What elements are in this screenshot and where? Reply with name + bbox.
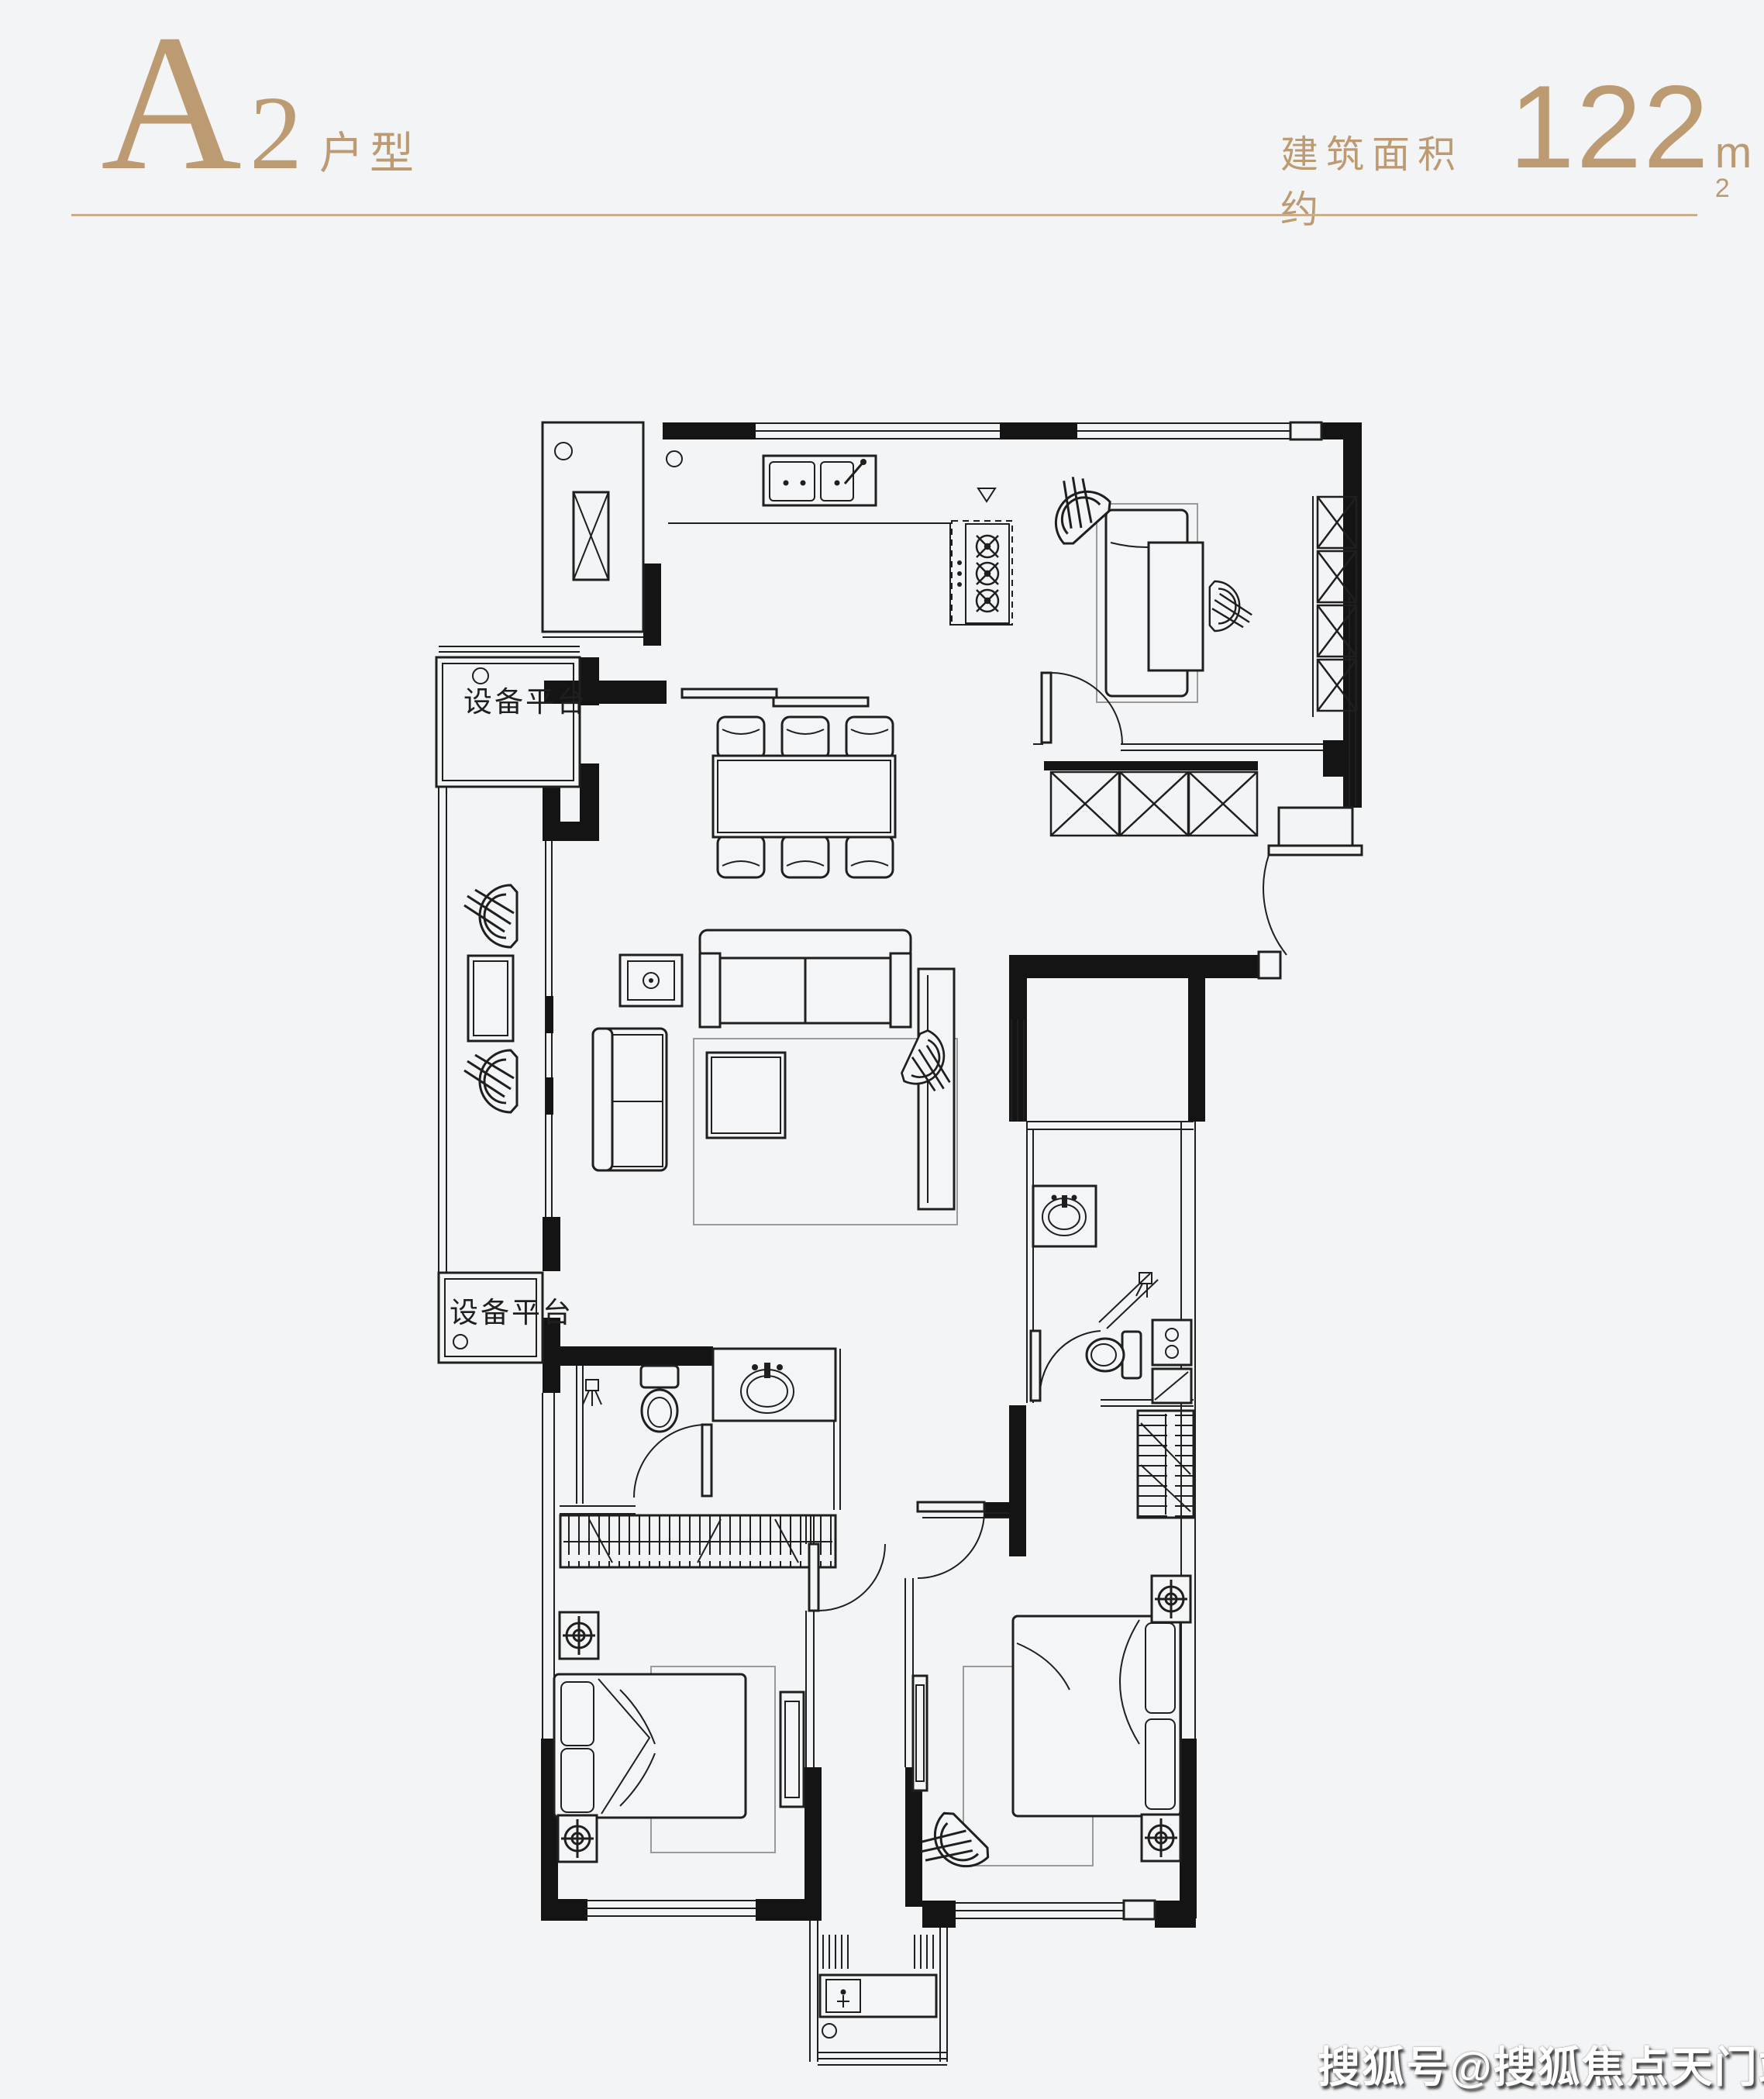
- entry: [1051, 772, 1362, 978]
- side-table-icon: [620, 955, 682, 1006]
- bedroom-left: [554, 1612, 775, 1862]
- wash-basin-icon: [713, 1349, 835, 1421]
- armchair-icon: [1033, 467, 1115, 548]
- gas-stove-icon: [952, 521, 1012, 625]
- bathroom-shared: [577, 1349, 835, 1504]
- wash-basin-icon: [1033, 1186, 1096, 1246]
- bedroom-doors: [780, 1502, 984, 1807]
- bedroom-master-window: [956, 1901, 1155, 1919]
- shaft: [555, 443, 608, 580]
- dining-table-icon: [713, 756, 895, 837]
- nightstand-icon: [560, 1612, 598, 1659]
- sofa-icon: [700, 930, 911, 1027]
- dining-chairs-bottom: [718, 836, 893, 877]
- kitchen: [667, 451, 1012, 706]
- nightstand-icon: [1152, 1576, 1190, 1622]
- bedroom-top-right: [1033, 467, 1356, 744]
- dining-chairs-top: [718, 717, 893, 759]
- balcony: [439, 787, 553, 1273]
- dining-area: [713, 717, 895, 877]
- utility-balcony: [810, 1921, 947, 2065]
- tv-cabinet-icon: [918, 969, 954, 1209]
- bedroom-top-window: [1077, 422, 1321, 439]
- bedroom-left-window: [585, 1901, 756, 1916]
- washing-machine-icon: [1152, 1320, 1191, 1365]
- shower-icon: [583, 1380, 601, 1406]
- shower-icon: [1099, 1273, 1158, 1329]
- floor-drain-icon: [822, 2024, 836, 2038]
- bathroom-master: [1031, 1186, 1194, 1518]
- bedroom-master-door: [918, 1502, 984, 1578]
- armchair-icon: [911, 1809, 993, 1890]
- equipment-platform-top: 设备平台: [436, 646, 587, 787]
- desk-icon: [1149, 543, 1203, 670]
- nightstand-icon: [558, 1815, 597, 1862]
- vent-symbol: [978, 488, 995, 501]
- balcony-table: [468, 956, 513, 1041]
- watermark: 搜狐号@搜狐焦点天门站: [1318, 2032, 1764, 2094]
- platform-label-top: 设备平台: [463, 686, 587, 718]
- desk-chair-icon: [1210, 581, 1252, 631]
- kitchen-window: [756, 423, 1000, 439]
- nightstand-icon: [1142, 1815, 1180, 1861]
- kitchen-sink-icon: [763, 456, 876, 505]
- balcony-chair-icon: [464, 885, 517, 947]
- kitchen-sliding-door: [682, 689, 868, 706]
- balcony-chair-icon: [464, 1050, 517, 1112]
- coffee-table-icon: [707, 1053, 785, 1138]
- toilet-icon: [1087, 1332, 1141, 1378]
- loveseat-icon: [593, 1029, 667, 1170]
- toilet-icon: [641, 1366, 678, 1432]
- living-room: [593, 930, 966, 1225]
- louvre-vent-icon: [823, 1935, 933, 1969]
- double-bed-icon: [1013, 1616, 1180, 1816]
- closet: [560, 1515, 835, 1567]
- bedroom-master: [911, 1576, 1190, 1890]
- entry-door: [1259, 846, 1362, 978]
- bathroom-shared-door: [634, 1425, 711, 1498]
- hanging-wardrobe-icon: [1138, 1411, 1194, 1518]
- platform-label-bottom: 设备平台: [450, 1297, 574, 1329]
- shoe-cabinet-icon: [1051, 772, 1257, 836]
- double-bed-icon: [554, 1674, 746, 1818]
- floor-plan: 设备平台 设备平台: [0, 0, 1764, 2099]
- laundry-cabinet-icon: [1152, 1369, 1191, 1403]
- utility-sink-icon: [820, 1975, 936, 2017]
